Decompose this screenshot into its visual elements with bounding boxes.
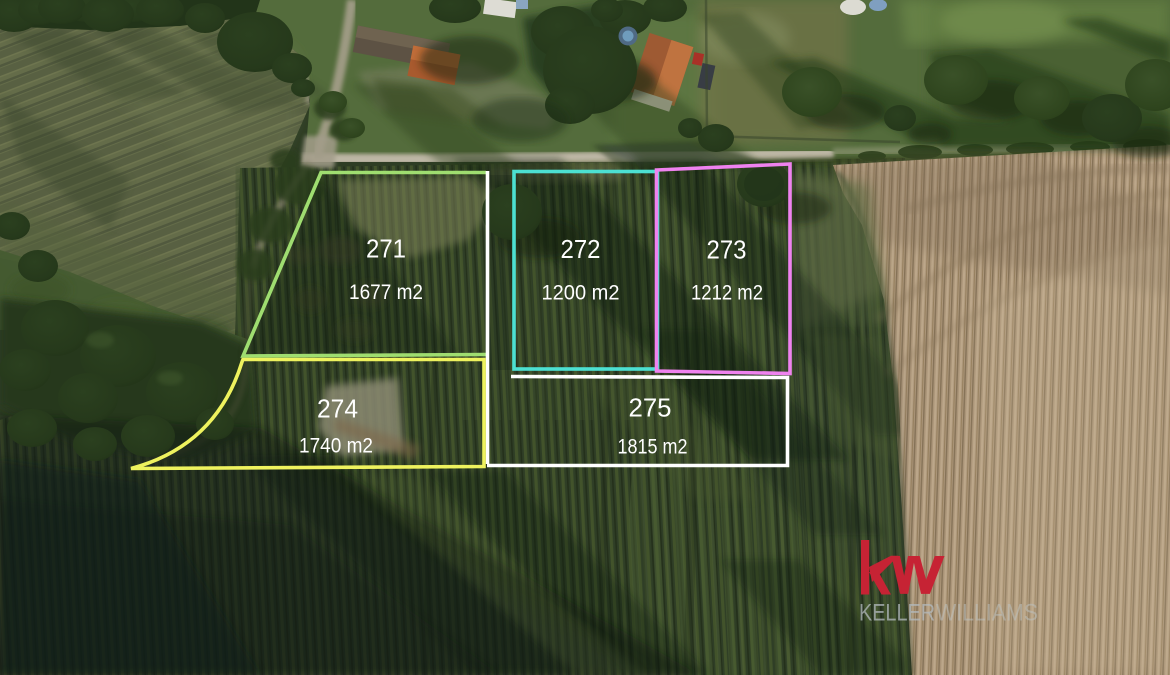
svg-text:1212 m2: 1212 m2: [691, 281, 763, 305]
svg-text:273: 273: [707, 237, 747, 265]
svg-text:1677 m2: 1677 m2: [349, 280, 423, 304]
svg-text:272: 272: [561, 236, 601, 264]
svg-text:1200 m2: 1200 m2: [542, 281, 620, 305]
svg-text:1740 m2: 1740 m2: [299, 434, 373, 458]
svg-text:271: 271: [366, 236, 406, 264]
svg-text:275: 275: [629, 395, 672, 423]
svg-text:KELLER: KELLER: [859, 600, 935, 627]
svg-text:1815 m2: 1815 m2: [618, 435, 688, 459]
svg-text:WILLIAMS: WILLIAMS: [936, 600, 1038, 627]
svg-text:274: 274: [317, 396, 358, 424]
